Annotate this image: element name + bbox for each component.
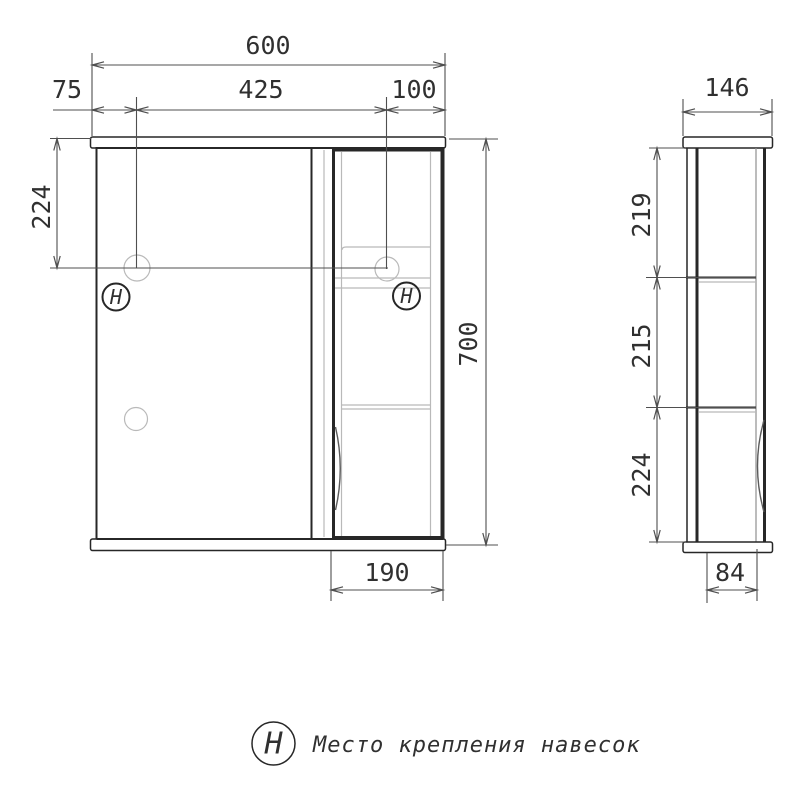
hanger-mark-right-symbol: Н <box>399 284 413 308</box>
front-body <box>97 148 444 539</box>
dimension-190: 190 <box>331 551 443 601</box>
dim-600-label: 600 <box>245 31 290 60</box>
dim-215-label: 215 <box>627 323 656 368</box>
dim-190-label: 190 <box>364 558 409 587</box>
dim-75-label: 75 <box>52 75 82 104</box>
dimension-chain-219-215-224: 219 215 224 <box>627 148 756 542</box>
dimension-84: 84 <box>707 549 757 603</box>
legend: Н Место крепления навесок <box>252 722 641 765</box>
dim-224-side-label: 224 <box>627 452 656 497</box>
dim-700-label: 700 <box>454 321 483 366</box>
legend-label: Место крепления навесок <box>312 733 641 758</box>
dim-219-label: 219 <box>627 192 656 237</box>
side-bottom-shelf <box>683 542 773 553</box>
dim-84-label: 84 <box>715 558 745 587</box>
dim-224-front-label: 224 <box>27 184 56 229</box>
side-top-crown <box>683 137 773 148</box>
hanger-mark-left-symbol: Н <box>109 285 123 309</box>
dimension-depth-146: 146 <box>683 73 772 136</box>
dim-425-label: 425 <box>238 75 283 104</box>
front-top-crown <box>91 137 446 148</box>
technical-drawing-page: Н Н 600 75 425 100 <box>0 0 800 800</box>
dim-146-label: 146 <box>704 73 749 102</box>
cabinet-drawing: Н Н 600 75 425 100 <box>0 0 800 800</box>
front-bottom-shelf <box>91 539 446 551</box>
dimension-height-700: 700 <box>446 139 498 545</box>
legend-symbol: Н <box>263 727 283 762</box>
dim-100-label: 100 <box>391 75 436 104</box>
front-view: Н Н 600 75 425 100 <box>27 31 498 601</box>
side-view: 146 219 215 224 84 <box>627 73 773 603</box>
